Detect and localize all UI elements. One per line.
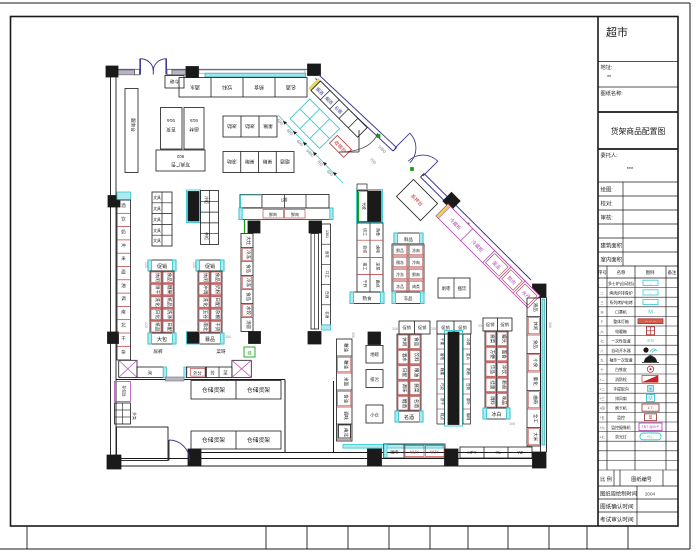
svg-text:酒水: 酒水 — [190, 83, 200, 90]
svg-text:糕点: 糕点 — [440, 413, 445, 421]
svg-text:切工: 切工 — [363, 228, 369, 236]
svg-text:文具: 文具 — [153, 238, 161, 243]
svg-text:....: .... — [649, 291, 653, 295]
svg-text:膨化: 膨化 — [532, 377, 539, 386]
svg-text:服务台: 服务台 — [130, 118, 137, 132]
svg-text:微冻: 微冻 — [396, 260, 404, 265]
svg-text:干货: 干货 — [214, 322, 221, 332]
svg-text:干果: 干果 — [440, 338, 445, 346]
svg-text:HPY: HPY — [467, 450, 476, 455]
svg-text:902: 902 — [176, 154, 184, 159]
svg-text:鲜品: 鲜品 — [404, 236, 413, 243]
svg-text:面食: 面食 — [500, 349, 507, 359]
svg-text:M: M — [601, 311, 604, 315]
svg-text:暴品: 暴品 — [205, 336, 215, 343]
svg-text:洗化: 洗化 — [202, 297, 209, 307]
svg-text:名酒: 名酒 — [404, 414, 414, 421]
svg-text:一YL: 一YL — [491, 450, 501, 455]
svg-text:蛋工: 蛋工 — [363, 262, 369, 270]
svg-text:306: 306 — [548, 322, 552, 328]
svg-text:M: M — [648, 310, 653, 316]
svg-text:电暖箱: 电暖箱 — [615, 329, 627, 334]
svg-text:1排: 1排 — [281, 197, 288, 204]
svg-text:糖果: 糖果 — [440, 368, 445, 376]
svg-text:促销: 促销 — [486, 321, 494, 328]
svg-text:南北: 南北 — [342, 428, 349, 437]
svg-text:食品: 食品 — [245, 292, 252, 301]
svg-text:小食: 小食 — [532, 358, 539, 367]
svg-text:室内面积: 室内面积 — [601, 256, 623, 264]
svg-text:芳: 芳 — [210, 370, 215, 377]
svg-text:全工: 全工 — [533, 414, 539, 423]
svg-text:图例: 图例 — [646, 269, 655, 276]
svg-text:一次性饭盒: 一次性饭盒 — [611, 338, 631, 343]
svg-text:果瞅: 果瞅 — [262, 158, 272, 165]
svg-text:冻品: 冻品 — [404, 295, 413, 302]
svg-text:五谷: 五谷 — [202, 310, 209, 320]
svg-text:+六: +六 — [599, 425, 605, 430]
svg-text:米面: 米面 — [342, 377, 349, 386]
svg-text:豆奶: 豆奶 — [466, 383, 471, 391]
svg-text:粮油: 粮油 — [342, 360, 349, 369]
svg-text:纸品: 纸品 — [154, 322, 161, 332]
svg-text:油: 油 — [121, 282, 126, 289]
svg-text:干炸: 干炸 — [363, 280, 369, 288]
svg-text:校对:: 校对: — [601, 200, 613, 208]
svg-text:排风扇: 排风扇 — [615, 396, 627, 401]
svg-text:南北: 南北 — [202, 322, 209, 332]
svg-text:+二: +二 — [599, 387, 605, 391]
svg-text:口立: 口立 — [325, 271, 330, 279]
svg-text:冷冻: 冷冻 — [245, 278, 252, 287]
svg-text:食品: 食品 — [532, 340, 539, 349]
svg-text:肉类: 肉类 — [412, 284, 420, 289]
svg-text:搔饮: 搔饮 — [458, 285, 467, 292]
svg-text:果瞅: 果瞅 — [263, 123, 273, 130]
svg-text:冷肉: 冷肉 — [412, 260, 420, 265]
svg-text:名称: 名称 — [617, 269, 626, 276]
svg-text:2004: 2004 — [645, 492, 656, 497]
svg-text:冰白: 冰白 — [491, 411, 501, 418]
svg-text:调味: 调味 — [401, 383, 408, 393]
svg-text:超市: 超市 — [606, 25, 628, 39]
svg-text:洗化: 洗化 — [154, 297, 161, 307]
svg-text:306: 306 — [351, 332, 355, 338]
svg-text:促销: 促销 — [205, 263, 215, 270]
svg-text:鲜品: 鲜品 — [396, 248, 404, 253]
svg-text:画材: 画材 — [189, 126, 199, 133]
svg-text:茶叶: 茶叶 — [466, 398, 471, 406]
svg-text:曲奇: 曲奇 — [532, 395, 539, 404]
svg-text:手提取向: 手提取向 — [613, 386, 629, 391]
svg-text:仓储货架: 仓储货架 — [202, 436, 225, 444]
svg-text:洗涤: 洗涤 — [166, 310, 173, 320]
svg-text:名酒: 名酒 — [413, 399, 420, 409]
svg-text:荧光灯: 荧光灯 — [615, 434, 627, 439]
svg-text:酱菜: 酱菜 — [413, 383, 420, 393]
svg-text:酱菜: 酱菜 — [489, 334, 496, 344]
svg-text:南: 南 — [121, 308, 126, 314]
svg-text:冷冻: 冷冻 — [245, 250, 252, 259]
svg-text:菜呀: 菜呀 — [216, 348, 226, 355]
svg-text:消防栓: 消防栓 — [615, 377, 627, 382]
svg-text:WJY: WJY — [410, 450, 419, 455]
svg-text:熟食: 熟食 — [376, 228, 382, 236]
svg-text:绘图:: 绘图: — [601, 186, 613, 194]
svg-text:冲调: 冲调 — [466, 338, 471, 346]
svg-text:冻品: 冻品 — [396, 284, 404, 289]
svg-text:306: 306 — [392, 327, 398, 331]
svg-text:尿裤: 尿裤 — [153, 348, 163, 355]
svg-text:鲜肉: 鲜肉 — [291, 211, 299, 217]
svg-text:饮料: 饮料 — [413, 352, 420, 362]
svg-text:休闲: 休闲 — [154, 273, 161, 283]
svg-text:WJY: WJY — [430, 450, 439, 455]
svg-text:促销: 促销 — [403, 324, 411, 331]
svg-text:称今: 称今 — [170, 79, 180, 86]
svg-text:仓储货架: 仓储货架 — [202, 386, 225, 394]
svg-text:面点: 面点 — [376, 280, 382, 288]
svg-text:纸品: 纸品 — [166, 297, 173, 307]
svg-text:大米: 大米 — [532, 432, 539, 441]
svg-text:监: 监 — [649, 415, 653, 420]
svg-text:咖啡: 咖啡 — [390, 449, 399, 456]
svg-text:液品: 液品 — [532, 303, 539, 312]
svg-text:大灶: 大灶 — [245, 236, 252, 245]
svg-text:水饺: 水饺 — [245, 306, 252, 315]
svg-text:绿: 绿 — [248, 350, 252, 356]
svg-text:≋≋: ≋≋ — [647, 338, 654, 343]
svg-text:奶: 奶 — [121, 229, 126, 236]
svg-text:白酒: 白酒 — [325, 291, 330, 299]
svg-text:1301: 1301 — [325, 230, 329, 238]
svg-text:汤圆: 汤圆 — [245, 320, 252, 329]
svg-text:烟酒: 烟酒 — [280, 158, 290, 165]
svg-text:食品: 食品 — [245, 264, 252, 273]
svg-text:杂: 杂 — [121, 349, 126, 354]
svg-text:地磅: 地磅 — [370, 351, 379, 358]
svg-text:文具: 文具 — [153, 206, 161, 211]
svg-text:白铁皮: 白铁皮 — [615, 367, 627, 372]
svg-text:....: .... — [649, 281, 653, 285]
svg-text:306: 306 — [431, 327, 437, 331]
svg-text:巧克: 巧克 — [440, 383, 445, 391]
svg-text:休闲: 休闲 — [401, 337, 408, 347]
svg-text:地址:: 地址: — [601, 63, 613, 71]
svg-text:***: *** — [627, 167, 634, 173]
svg-text:监控摄像机: 监控摄像机 — [611, 425, 631, 430]
svg-text:咖啡: 咖啡 — [466, 413, 471, 421]
svg-text:袖珍一次饭盒: 袖珍一次饭盒 — [609, 358, 632, 363]
svg-text:百货: 百货 — [166, 126, 176, 133]
svg-text:-: - — [601, 282, 602, 286]
svg-text:+E|...: +E|... — [647, 435, 655, 439]
svg-text:食品: 食品 — [413, 337, 420, 347]
svg-text:烟酒: 烟酒 — [401, 399, 408, 409]
svg-text:冷冻: 冷冻 — [396, 272, 404, 277]
svg-text:存包处: 存包处 — [122, 385, 127, 397]
svg-text:比 例: 比 例 — [600, 475, 612, 483]
svg-text:代收: 代收 — [362, 202, 367, 210]
svg-text:杂粮: 杂粮 — [214, 310, 221, 320]
svg-text:调: 调 — [121, 295, 126, 302]
svg-text:熟食: 熟食 — [362, 295, 372, 302]
svg-text:s: s — [650, 386, 652, 391]
svg-text:序号: 序号 — [598, 269, 607, 276]
svg-text:促销: 促销 — [501, 321, 509, 328]
svg-text:自动开水器: 自动开水器 — [611, 348, 631, 353]
svg-text:北: 北 — [121, 322, 126, 329]
svg-text:米: 米 — [121, 255, 126, 262]
svg-text:促销: 促销 — [418, 324, 426, 331]
svg-text:文具: 文具 — [153, 217, 161, 222]
svg-text:图纸确认时间: 图纸确认时间 — [600, 503, 634, 511]
svg-text:仓储货架: 仓储货架 — [247, 436, 270, 444]
svg-text:粮油: 粮油 — [413, 368, 420, 378]
svg-text:— — —: — — — — [645, 320, 656, 324]
svg-text:多士炉(自动挡): 多士炉(自动挡) — [608, 281, 635, 286]
svg-text:委托人:: 委托人: — [601, 151, 618, 159]
svg-text:罐头: 罐头 — [500, 334, 507, 344]
svg-text:220: 220 — [192, 262, 196, 268]
svg-text:图纸编号: 图纸编号 — [631, 475, 652, 483]
svg-text:+七: +七 — [599, 434, 605, 439]
svg-text:蜜饯: 蜜饯 — [440, 353, 445, 361]
svg-text:306: 306 — [478, 324, 484, 328]
svg-text:日化: 日化 — [154, 310, 161, 320]
svg-text:自切: 自切 — [363, 245, 369, 253]
svg-text:监控: 监控 — [617, 415, 625, 420]
svg-text:粮油: 粮油 — [342, 343, 349, 352]
svg-text:306: 306 — [225, 335, 231, 339]
svg-text:饼干: 饼干 — [440, 398, 445, 406]
svg-text:食品: 食品 — [214, 273, 221, 283]
svg-text:916: 916 — [167, 117, 175, 123]
svg-text:+三: +三 — [599, 397, 605, 401]
svg-text:果瞅: 果瞅 — [245, 158, 255, 165]
svg-text:大包: 大包 — [157, 336, 167, 343]
svg-text:1 7:: 1 7: — [647, 406, 653, 410]
svg-text:方便: 方便 — [489, 349, 496, 359]
svg-text:饮料: 饮料 — [222, 83, 232, 90]
svg-text:220: 220 — [144, 262, 148, 268]
svg-text:**: ** — [607, 75, 611, 81]
svg-text:浪助: 浪助 — [227, 123, 237, 130]
svg-text:小仓: 小仓 — [370, 412, 379, 419]
svg-text:F: F — [601, 320, 603, 324]
svg-text:+四: +四 — [599, 407, 605, 411]
svg-text:促销: 促销 — [441, 324, 449, 331]
svg-text:酒: 酒 — [121, 202, 126, 209]
svg-text:奶粉: 奶粉 — [466, 368, 471, 376]
svg-text:名酒: 名酒 — [286, 83, 296, 90]
svg-text:冲调: 冲调 — [202, 285, 209, 295]
svg-text:915: 915 — [190, 117, 198, 123]
svg-text:306: 306 — [509, 422, 515, 426]
svg-text:鲜肉: 鲜肉 — [412, 272, 420, 277]
svg-text:挂面: 挂面 — [489, 380, 496, 390]
svg-text:写真广告: 写真广告 — [171, 161, 190, 168]
svg-text:口罩机: 口罩机 — [615, 310, 627, 315]
svg-text:备注: 备注 — [668, 269, 677, 276]
svg-text:调料: 调料 — [489, 396, 496, 406]
svg-text:冻肉: 冻肉 — [412, 248, 420, 253]
svg-text:剥枣: 剥枣 — [442, 285, 451, 292]
svg-text:味品: 味品 — [500, 396, 507, 406]
svg-text:卤味: 卤味 — [376, 245, 382, 253]
svg-text:菜: 菜 — [223, 370, 228, 377]
svg-text:冲饮: 冲饮 — [500, 365, 507, 375]
svg-text:....: .... — [649, 301, 653, 305]
svg-text:冷柜: 冷柜 — [204, 196, 210, 204]
svg-text:奶粉: 奶粉 — [214, 285, 221, 295]
svg-text:鲜肉: 鲜肉 — [269, 211, 277, 217]
svg-text:酒水: 酒水 — [401, 352, 408, 362]
svg-text:M: M — [648, 396, 652, 402]
svg-text:外分: 外分 — [193, 370, 202, 377]
svg-text:220: 220 — [144, 322, 148, 328]
svg-text:外卖: 外卖 — [132, 412, 137, 420]
svg-text:食品: 食品 — [166, 273, 173, 283]
svg-text:YZ: YZ — [517, 450, 523, 455]
svg-text:货架商品配置图: 货架商品配置图 — [611, 126, 666, 136]
svg-text:文具: 文具 — [153, 195, 161, 200]
svg-text:糖果: 糖果 — [166, 285, 173, 295]
svg-text:促销: 促销 — [458, 324, 466, 331]
svg-text:浪花: 浪花 — [325, 251, 330, 259]
svg-text:茶柜: 茶柜 — [204, 232, 210, 240]
svg-text:整体灯箱: 整体灯箱 — [613, 319, 629, 324]
svg-text:+五: +五 — [599, 416, 605, 420]
svg-text:饼干: 饼干 — [154, 285, 161, 295]
svg-text:浪助: 浪助 — [227, 158, 237, 165]
svg-text:熟食: 熟食 — [254, 83, 264, 90]
svg-text:浪助: 浪助 — [245, 123, 255, 130]
svg-text:仓储货架: 仓储货架 — [247, 386, 270, 394]
svg-text:冲: 冲 — [121, 242, 126, 249]
svg-text:图纸周绘制时间: 图纸周绘制时间 — [600, 490, 637, 498]
svg-text:饮: 饮 — [121, 215, 126, 222]
svg-text:休闲: 休闲 — [532, 321, 539, 330]
svg-text:TNT 台BYP: TNT 台BYP — [642, 424, 660, 429]
svg-text:+—: +— — [599, 378, 605, 382]
svg-text:食油: 食油 — [342, 394, 349, 403]
svg-text:建筑面积: 建筑面积 — [601, 242, 623, 250]
svg-text:系列烤炉电烤: 系列烤炉电烤 — [609, 300, 632, 305]
svg-text:图纸名称:: 图纸名称: — [601, 89, 623, 97]
svg-text:粉丝: 粉丝 — [500, 380, 507, 390]
svg-text:考试审认时间: 考试审认时间 — [600, 516, 634, 524]
svg-text:调味: 调味 — [342, 411, 349, 420]
svg-text:洵: 洵 — [148, 370, 153, 377]
svg-text:文具: 文具 — [153, 228, 161, 233]
svg-text:促销: 促销 — [157, 263, 167, 270]
svg-text:凉菜: 凉菜 — [376, 262, 382, 270]
svg-text:刷卡机: 刷卡机 — [615, 406, 627, 411]
svg-text:烤肉炉排骨炉: 烤肉炉排骨炉 — [609, 290, 632, 295]
svg-text:麦片: 麦片 — [466, 353, 471, 361]
svg-text:名酒: 名酒 — [325, 311, 330, 319]
svg-text:休闲: 休闲 — [202, 273, 209, 283]
svg-text:审核:: 审核: — [601, 214, 613, 222]
svg-text:排污: 排污 — [370, 376, 379, 383]
svg-text:饮品: 饮品 — [489, 365, 496, 375]
